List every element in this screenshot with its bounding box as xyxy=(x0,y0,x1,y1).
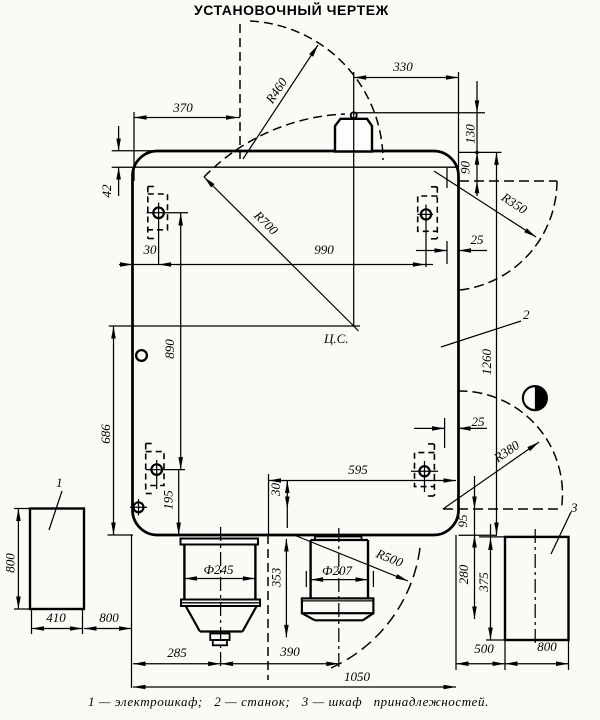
svg-text:R460: R460 xyxy=(262,75,291,107)
svg-text:130: 130 xyxy=(463,124,478,144)
svg-text:3: 3 xyxy=(570,500,578,515)
svg-text:R350: R350 xyxy=(498,189,530,217)
svg-text:R380: R380 xyxy=(490,437,522,466)
svg-text:800: 800 xyxy=(99,610,119,625)
svg-text:890: 890 xyxy=(162,339,177,359)
svg-text:370: 370 xyxy=(172,100,193,115)
svg-text:800: 800 xyxy=(3,553,18,573)
svg-text:42: 42 xyxy=(99,184,114,198)
svg-text:Ф207: Ф207 xyxy=(322,563,352,578)
svg-text:390: 390 xyxy=(279,644,300,659)
svg-text:Ф245: Ф245 xyxy=(204,562,234,577)
svg-text:25: 25 xyxy=(471,232,485,247)
svg-text:R700: R700 xyxy=(250,207,281,238)
svg-text:595: 595 xyxy=(348,462,368,477)
svg-text:25: 25 xyxy=(472,414,486,429)
svg-text:90: 90 xyxy=(458,161,473,175)
svg-text:375: 375 xyxy=(476,572,491,593)
svg-text:285: 285 xyxy=(167,645,187,660)
svg-text:353: 353 xyxy=(269,567,284,588)
svg-text:2: 2 xyxy=(523,307,530,322)
svg-text:1: 1 xyxy=(56,475,63,490)
svg-text:410: 410 xyxy=(46,610,66,625)
svg-text:500: 500 xyxy=(474,641,494,656)
svg-text:1 — электрошкаф; 2 — станок;: 1 — электрошкаф; 2 — станок; 3 — шкаф пр… xyxy=(88,694,489,709)
svg-text:R500: R500 xyxy=(373,545,405,570)
svg-text:УСТАНОВОЧНЫЙ ЧЕРТЕЖ: УСТАНОВОЧНЫЙ ЧЕРТЕЖ xyxy=(194,1,389,18)
svg-text:30: 30 xyxy=(143,242,158,257)
svg-text:1260: 1260 xyxy=(479,349,494,376)
svg-text:330: 330 xyxy=(392,59,413,74)
svg-text:1050: 1050 xyxy=(344,669,371,684)
svg-text:280: 280 xyxy=(456,564,471,584)
svg-text:Ц.С.: Ц.С. xyxy=(323,331,349,346)
svg-text:800: 800 xyxy=(537,639,557,654)
svg-text:195: 195 xyxy=(161,490,176,510)
svg-text:30: 30 xyxy=(268,483,283,498)
svg-text:686: 686 xyxy=(98,424,113,444)
svg-text:95: 95 xyxy=(455,514,470,528)
svg-text:990: 990 xyxy=(314,242,334,257)
